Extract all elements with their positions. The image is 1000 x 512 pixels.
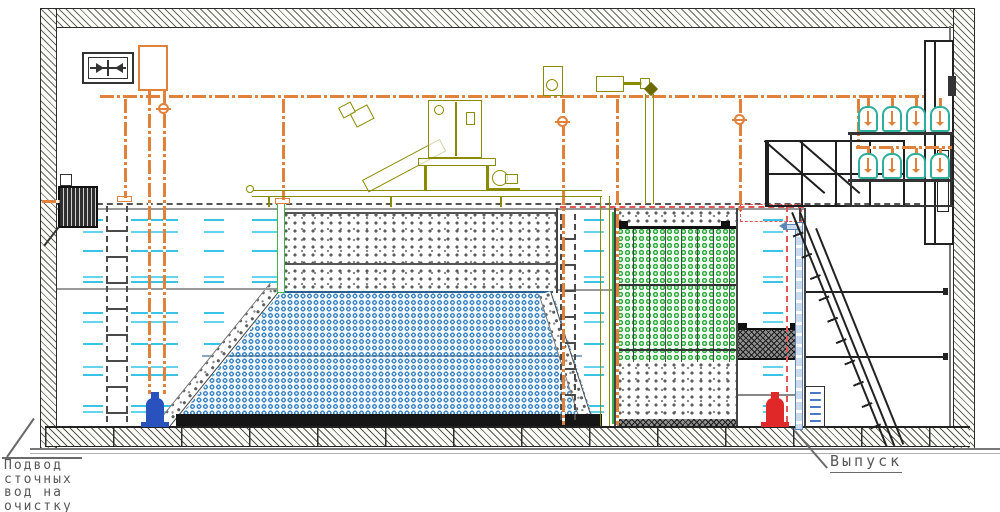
media-mid-line xyxy=(283,263,557,265)
cabinet-vent xyxy=(466,112,475,125)
blower-unit-2 xyxy=(882,106,902,132)
channel-left-wall xyxy=(556,208,558,293)
media-top-line xyxy=(283,212,557,214)
walkway-support-1 xyxy=(268,197,270,207)
fan-cross-line xyxy=(90,67,126,69)
rack-base-line xyxy=(846,205,954,207)
flow-arrow-left xyxy=(774,221,787,231)
cabinet-fan-icon xyxy=(434,105,444,115)
outlet-label: Выпуск xyxy=(830,452,902,473)
floating-media-zone xyxy=(283,212,557,293)
access-ladder-tank1 xyxy=(106,206,128,422)
walkway-beam xyxy=(252,190,602,197)
floor-slab xyxy=(45,426,970,447)
valve-2 xyxy=(557,116,568,127)
ground-line-1 xyxy=(30,448,1000,450)
red-pump-cap xyxy=(771,392,779,399)
hoist-wheel xyxy=(546,79,558,91)
cabinet-door-line xyxy=(455,102,457,156)
rail-endcap-1 xyxy=(943,288,948,295)
pump-riser-b xyxy=(163,91,166,394)
green-media-line1 xyxy=(617,284,737,286)
bioreactor-right-wall xyxy=(736,208,738,428)
blower-motor-top xyxy=(596,76,624,92)
olive-riser-2 xyxy=(600,196,610,426)
outlet-box xyxy=(805,386,825,428)
outlet-chamber-line xyxy=(737,394,800,396)
inlet-screen-basket xyxy=(58,186,98,228)
blower-unit-1 xyxy=(858,106,878,132)
rail-endcap-2 xyxy=(943,353,948,360)
treatment-plant-section-drawing: Подвод сточных вод на очистку Выпуск xyxy=(0,0,1000,512)
walkway-support-2 xyxy=(390,197,392,207)
door-frame-line xyxy=(934,42,936,243)
olive-riser-1 xyxy=(645,94,654,204)
walkway-support-3 xyxy=(500,197,502,207)
valve-3 xyxy=(734,114,745,125)
bioreactor-green-media xyxy=(617,228,737,362)
blue-pump-cap xyxy=(151,392,159,399)
screen-pump-motor xyxy=(505,174,518,184)
blower-unit-7 xyxy=(906,153,926,179)
blue-media-top-edge xyxy=(280,291,553,293)
pump-riser-a xyxy=(148,91,151,394)
right-wall xyxy=(953,8,975,449)
blower-unit-4 xyxy=(930,106,950,132)
valve-1 xyxy=(158,103,169,114)
submersible-pump-blue xyxy=(146,398,164,424)
green-edge-line xyxy=(612,212,614,424)
retainer-block-left xyxy=(619,221,628,228)
blower-manifold-2 xyxy=(856,146,952,149)
blower-shelf-1 xyxy=(848,132,954,135)
drop-pipe-3 xyxy=(562,99,565,425)
tank1-mid-line xyxy=(57,288,277,290)
blower-unit-8 xyxy=(930,153,950,179)
right-room-rail-2 xyxy=(806,356,948,358)
red-dashed-line-v xyxy=(786,206,788,422)
rack-post-right xyxy=(950,132,952,207)
bioreactor-bottom-media xyxy=(617,362,737,420)
drop-pipe-2-elbow xyxy=(275,198,290,204)
red-pump-base xyxy=(761,422,789,427)
blower-unit-6 xyxy=(882,153,902,179)
blower-unit-3 xyxy=(906,106,926,132)
blower-shelf-2 xyxy=(848,179,954,182)
sludge-block-cap-left xyxy=(737,323,747,329)
tank-rim-line xyxy=(57,208,805,210)
blue-media-mid-line xyxy=(202,355,582,357)
inlet-label: Подвод сточных вод на очистку xyxy=(4,459,73,512)
ceiling-slab xyxy=(40,8,975,28)
retainer-block-right xyxy=(721,221,730,228)
stair-handrail xyxy=(815,228,904,445)
green-media-line2 xyxy=(617,349,737,351)
media-retainer-bar xyxy=(617,226,737,229)
air-main-pipe xyxy=(100,95,950,98)
inlet-basket-stub xyxy=(60,174,72,186)
drop-pipe-1-elbow xyxy=(117,196,132,202)
drop-pipe-1 xyxy=(124,99,127,198)
walkway-hook xyxy=(246,185,254,193)
inlet-pipe xyxy=(42,200,60,203)
stand-leg-left xyxy=(424,166,427,190)
green-partition-strip xyxy=(277,203,285,293)
right-room-rail-1 xyxy=(806,291,948,293)
wall-junction-box xyxy=(948,76,956,96)
blower-unit-5 xyxy=(858,153,878,179)
drop-pipe-2 xyxy=(282,99,285,200)
drop-pipe-4 xyxy=(616,99,619,425)
left-wall xyxy=(40,8,57,449)
discharge-pump-red xyxy=(766,398,784,424)
sludge-block xyxy=(737,328,800,360)
stand-leg-right xyxy=(486,166,489,190)
expansion-tank xyxy=(138,45,168,91)
rack-post-left xyxy=(850,132,852,207)
inlet-leader-line xyxy=(6,418,35,458)
blue-pump-base xyxy=(141,422,169,427)
equipment-stand xyxy=(418,158,496,166)
